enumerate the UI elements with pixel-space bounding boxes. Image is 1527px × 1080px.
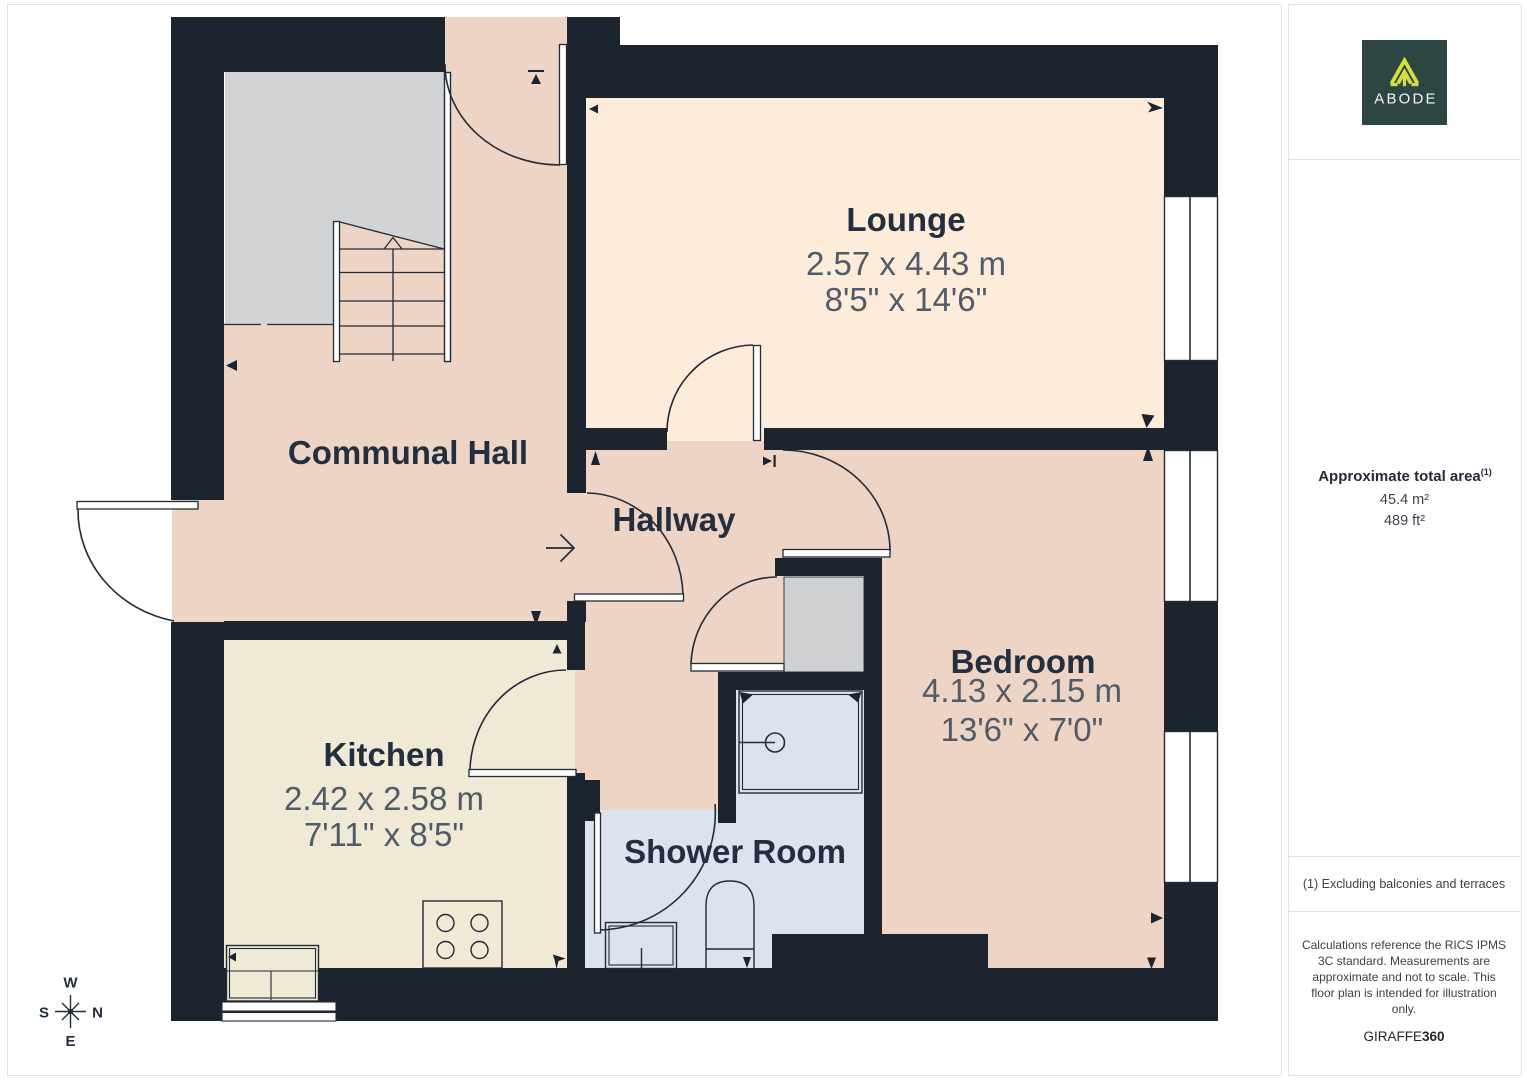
svg-text:S: S	[39, 1005, 49, 1022]
svg-text:E: E	[65, 1033, 75, 1050]
svg-text:Kitchen: Kitchen	[323, 736, 444, 773]
svg-text:Shower Room: Shower Room	[624, 833, 846, 870]
svg-text:W: W	[63, 975, 78, 992]
svg-text:ABODE: ABODE	[1374, 91, 1438, 108]
svg-text:13'6" x 7'0": 13'6" x 7'0"	[941, 711, 1104, 748]
svg-text:Hallway: Hallway	[613, 501, 737, 538]
svg-text:8'5" x 14'6": 8'5" x 14'6"	[825, 281, 988, 318]
svg-text:2.57 x 4.43 m: 2.57 x 4.43 m	[806, 245, 1006, 282]
svg-text:4.13 x 2.15 m: 4.13 x 2.15 m	[922, 672, 1122, 709]
svg-text:2.42 x 2.58 m: 2.42 x 2.58 m	[284, 780, 484, 817]
svg-text:N: N	[92, 1005, 103, 1022]
svg-text:7'11" x 8'5": 7'11" x 8'5"	[304, 816, 464, 853]
svg-text:Communal Hall: Communal Hall	[288, 434, 528, 471]
svg-text:Lounge: Lounge	[846, 201, 965, 238]
